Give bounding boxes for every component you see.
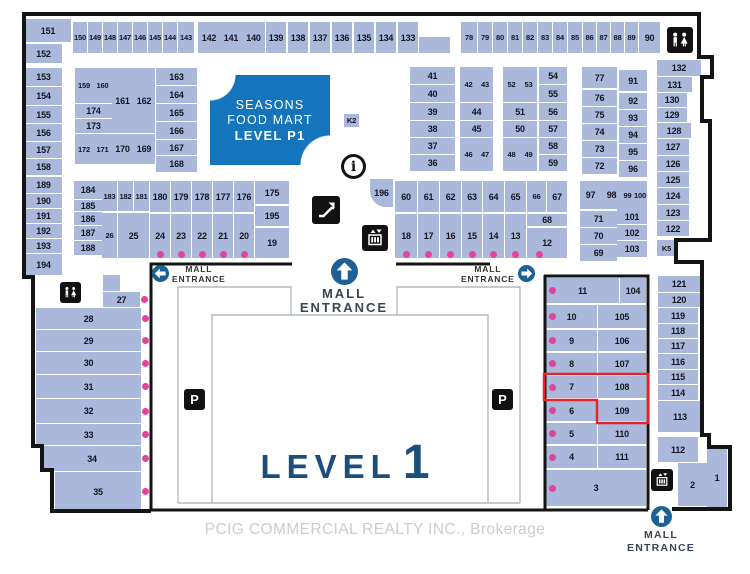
- elevator-icon: [362, 225, 388, 251]
- elevator-icon: [651, 469, 673, 491]
- mall-entrance-right: MALL ENTRANCE: [458, 263, 535, 284]
- entrance-word2: ENTRANCE: [300, 300, 388, 315]
- info-icon: i: [341, 154, 366, 179]
- escalator-icon: [312, 196, 340, 224]
- brokerage-watermark: PCIG COMMERCIAL REALTY INC., Brokerage: [220, 517, 530, 542]
- arrow-right-icon: [518, 265, 535, 282]
- entrance-word1: MALL: [644, 529, 678, 541]
- mall-entrance-left: MALL ENTRANCE: [152, 263, 229, 284]
- mall-entrance-bottom-right: MALL ENTRANCE: [616, 506, 706, 555]
- entrance-word2: ENTRANCE: [461, 274, 515, 284]
- entrance-word2: ENTRANCE: [627, 542, 695, 554]
- arrow-left-icon: [152, 265, 169, 282]
- restroom-icon: [60, 282, 81, 303]
- arrow-up-icon: [651, 506, 672, 527]
- mall-entrance-center: MALL ENTRANCE: [284, 258, 404, 315]
- parking-icon: P: [184, 389, 205, 410]
- floor-plan: 1511521531541551561571581501491481471461…: [0, 0, 750, 574]
- arrow-up-icon: [331, 258, 358, 285]
- restroom-icon: [667, 27, 693, 53]
- parking-icon: P: [492, 389, 513, 410]
- entrance-word2: ENTRANCE: [172, 274, 226, 284]
- entrance-word1: MALL: [185, 264, 212, 274]
- entrance-word1: MALL: [474, 264, 501, 274]
- entrance-word1: MALL: [322, 286, 366, 301]
